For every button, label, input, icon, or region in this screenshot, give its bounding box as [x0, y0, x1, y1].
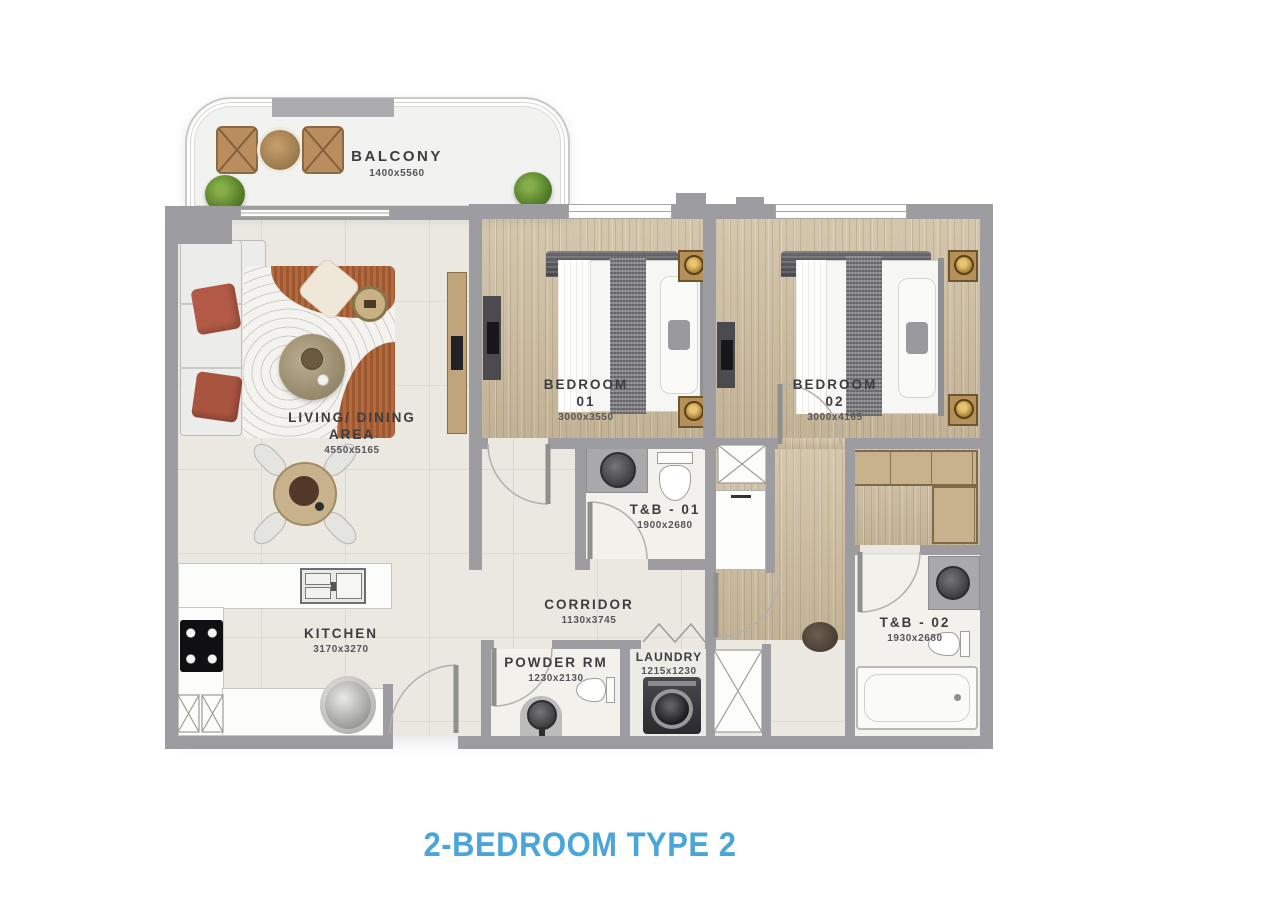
wall-bedrooms-top — [470, 204, 993, 219]
plan-title: 2-BEDROOM TYPE 2 — [424, 825, 737, 865]
tb2-sink — [936, 566, 970, 600]
wall-bottom-left — [165, 736, 393, 749]
balcony-name: BALCONY — [351, 148, 443, 167]
laundry-dims: 1215x1230 — [636, 665, 703, 679]
powder-name: POWDER RM — [504, 655, 608, 672]
bedroom1-name: BEDROOM — [544, 377, 629, 394]
sink-basin-left — [305, 573, 331, 585]
balcony-dims: 1400x5560 — [351, 167, 443, 181]
kitchen-column-appliance — [320, 676, 376, 734]
bed2-lamp-bottom — [954, 399, 974, 419]
tb1-dims: 1900x2680 — [630, 519, 701, 533]
bedroom1-window — [568, 204, 672, 219]
bed2-tv — [721, 340, 733, 370]
sink-basin-right — [336, 573, 362, 599]
wall-tb2-top-a — [845, 545, 860, 555]
wall-left — [165, 206, 178, 749]
corridor-dims: 1130x3745 — [544, 614, 634, 628]
wall-tb2-left — [845, 438, 855, 749]
wall-step-top-left — [165, 206, 232, 244]
balcony-table — [257, 127, 303, 173]
balcony-chair-left — [216, 126, 258, 174]
living-name-line2: AREA — [288, 427, 416, 444]
kitchen-label: KITCHEN 3170x3270 — [304, 626, 378, 657]
dining-table-plate — [315, 502, 324, 511]
tb1-label: T&B - 01 1900x2680 — [630, 502, 701, 533]
bedroom2-name: BEDROOM — [793, 377, 878, 394]
coffee-table-tray — [301, 348, 323, 370]
laundry-name: LAUNDRY — [636, 650, 703, 665]
wall-tb1-left — [575, 438, 586, 570]
tb2-bathtub — [856, 666, 978, 730]
wall-stub-top-2 — [736, 197, 764, 205]
tb1-name: T&B - 01 — [630, 502, 701, 519]
tb2-dims: 1930x2680 — [880, 632, 951, 646]
bathtub-drain — [954, 694, 961, 701]
tb1-toilet — [656, 452, 694, 502]
living-dims: 4550x5165 — [288, 444, 416, 458]
bedroom2-label: BEDROOM 02 3000x4165 — [793, 377, 878, 425]
coffee-table-cup — [317, 374, 329, 386]
tb2-toilet-tank — [960, 631, 970, 657]
wall-bedroom1-bottom-a — [469, 438, 488, 449]
wall-right — [980, 204, 993, 749]
laundry-label: LAUNDRY 1215x1230 — [636, 650, 703, 679]
tb1-toilet-tank — [657, 452, 693, 464]
bed1-pillow-accent — [668, 320, 690, 350]
dining-table — [273, 462, 337, 526]
powder-sink — [527, 700, 557, 730]
tb1-toilet-bowl — [659, 465, 691, 501]
wall-bedroom1-bedroom2 — [703, 204, 716, 450]
wall-hall-closet — [766, 438, 775, 573]
sink-faucet — [331, 582, 336, 591]
cabinet-handle — [731, 495, 751, 498]
floor-plan-page: BALCONY 1400x5560 LIVING/ DINING AREA 45… — [0, 0, 1270, 912]
sofa-pillow-bottom — [191, 371, 243, 423]
bedroom2-number: 02 — [793, 394, 878, 411]
bedroom2-dims: 3000x4165 — [793, 411, 878, 425]
wall-kitchen-stub — [383, 684, 393, 736]
wardrobe-top — [848, 450, 978, 486]
tb1-sink — [600, 452, 636, 488]
tb2-name: T&B - 02 — [880, 615, 951, 632]
kitchen-name: KITCHEN — [304, 626, 378, 643]
sink-basin-left2 — [305, 587, 331, 599]
corridor-label: CORRIDOR 1130x3745 — [544, 597, 634, 628]
bed2-pillow-accent — [906, 322, 928, 354]
wall-tb1-right — [705, 438, 716, 648]
balcony-sliding-door — [240, 209, 390, 217]
kitchen-dims: 3170x3270 — [304, 643, 378, 657]
wall-bottom-right — [458, 736, 993, 749]
washing-machine — [643, 677, 701, 734]
bed1-tv — [487, 322, 499, 354]
wall-tb2-top-b — [920, 545, 993, 555]
bedroom1-label: BEDROOM 01 3000x3550 — [544, 377, 629, 425]
bedroom2-door-threshold — [778, 438, 845, 449]
sofa-pillow-top — [190, 283, 241, 336]
bedroom1-number: 01 — [544, 394, 629, 411]
corridor-name: CORRIDOR — [544, 597, 634, 614]
living-tv — [451, 336, 463, 370]
wall-powder-left — [481, 644, 491, 736]
bed1-lamp-bottom — [684, 401, 704, 421]
balcony-planter — [272, 98, 394, 117]
bedroom2-window — [775, 204, 907, 219]
side-table-decor — [364, 300, 376, 308]
side-table — [352, 286, 388, 322]
wall-living-bedroom1 — [469, 204, 482, 570]
balcony-label: BALCONY 1400x5560 — [351, 148, 443, 181]
living-name-line1: LIVING/ DINING — [288, 410, 416, 427]
living-dining-label: LIVING/ DINING AREA 4550x5165 — [288, 410, 416, 458]
bed2-lamp-top — [954, 255, 974, 275]
dining-table-centerpiece — [289, 476, 319, 506]
hall-linen-cabinet — [714, 490, 766, 570]
wardrobe-right — [932, 486, 978, 544]
hallway-plant — [802, 622, 838, 652]
cooktop — [180, 620, 223, 672]
kitchen-sink — [300, 568, 366, 604]
wall-tb1-bottom-a — [575, 559, 590, 570]
powder-sink-tap — [539, 727, 545, 736]
balcony-chair-right — [302, 126, 344, 174]
wall-stub-top-1 — [676, 193, 706, 205]
wall-bedroom1-bottom-b — [548, 438, 716, 449]
wall-powder-laundry — [620, 644, 630, 736]
washer-panel — [648, 681, 696, 686]
powder-dims: 1230x2130 — [504, 672, 608, 686]
wall-laundry-closet — [706, 644, 715, 736]
powder-label: POWDER RM 1230x2130 — [504, 655, 608, 686]
bedroom1-dims: 3000x3550 — [544, 411, 629, 425]
bed2-headboard — [938, 258, 944, 416]
balcony-plant-right — [514, 172, 552, 208]
tb2-label: T&B - 02 1930x2680 — [880, 615, 951, 646]
washer-door — [651, 689, 693, 729]
wall-closet-right — [762, 644, 771, 736]
bed1-lamp-top — [684, 255, 704, 275]
wall-bedroom2-bottom-b — [845, 438, 993, 449]
coffee-table — [279, 334, 345, 400]
